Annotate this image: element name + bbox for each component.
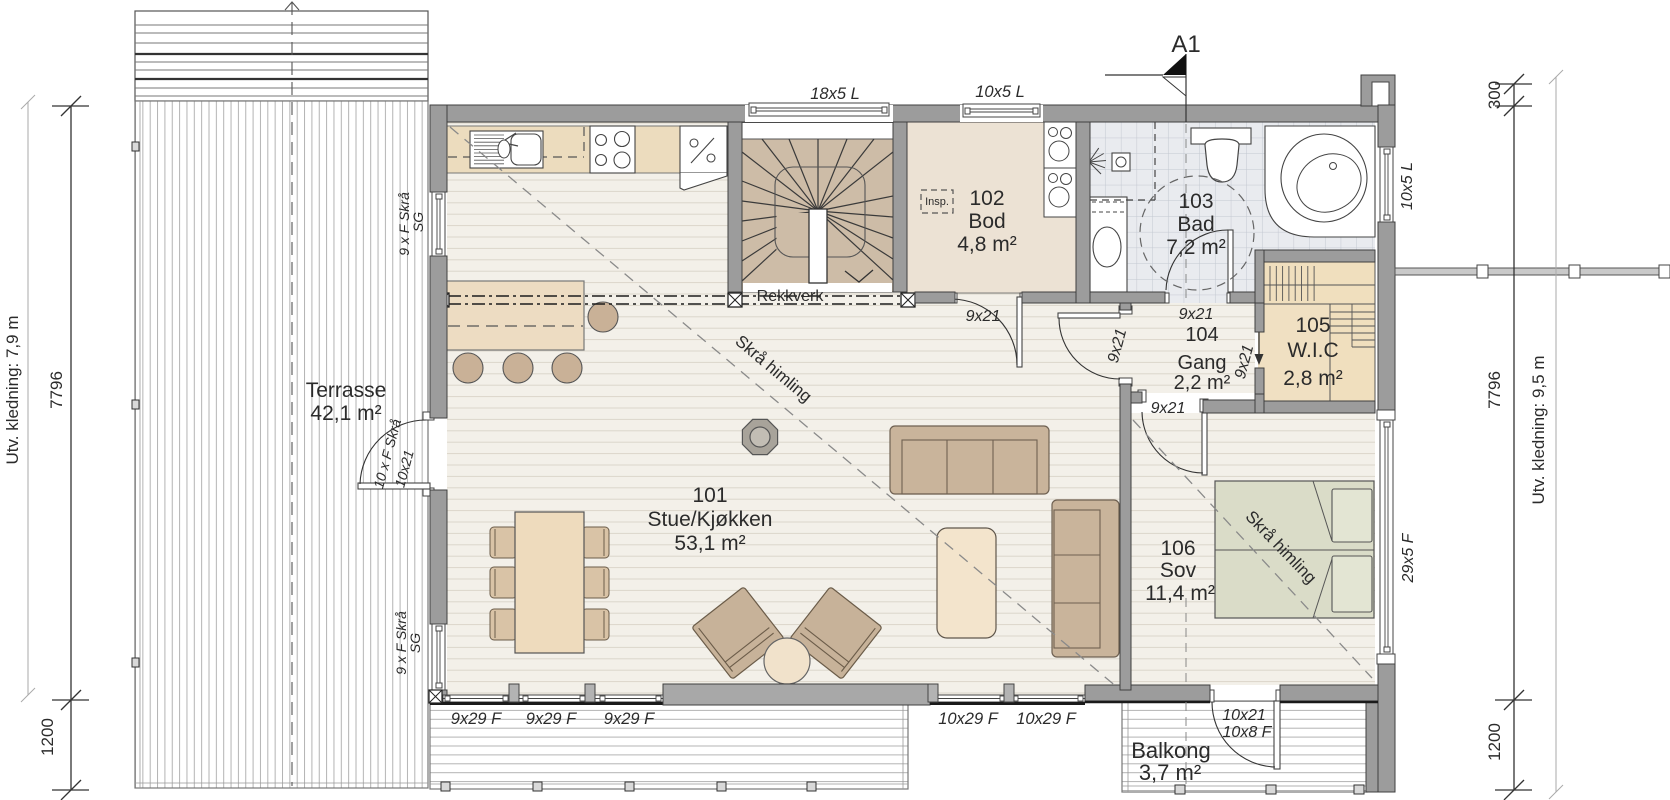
svg-text:Bad: Bad (1177, 213, 1214, 236)
svg-text:29x5 F: 29x5 F (1400, 532, 1417, 583)
svg-text:7796: 7796 (47, 371, 66, 409)
svg-text:Utv. kledning: 7,9 m: Utv. kledning: 7,9 m (3, 316, 22, 465)
svg-text:9x21: 9x21 (1179, 306, 1214, 323)
svg-text:Sov: Sov (1160, 559, 1197, 582)
svg-text:9x29 F: 9x29 F (451, 710, 502, 728)
svg-text:104: 104 (1185, 324, 1218, 346)
svg-text:9x29 F: 9x29 F (526, 710, 577, 728)
svg-text:53,1 m²: 53,1 m² (674, 532, 745, 555)
svg-text:4,8 m²: 4,8 m² (957, 233, 1017, 256)
svg-text:1200: 1200 (1485, 723, 1504, 761)
svg-text:Rekkverk: Rekkverk (757, 288, 825, 305)
svg-text:10x21: 10x21 (1222, 707, 1266, 724)
svg-text:105: 105 (1295, 314, 1330, 337)
svg-text:7796: 7796 (1485, 371, 1504, 409)
svg-text:10x8 F: 10x8 F (1223, 724, 1273, 741)
svg-text:103: 103 (1178, 190, 1213, 213)
svg-text:300: 300 (1485, 81, 1504, 109)
svg-text:Gang: Gang (1178, 352, 1227, 374)
svg-text:Bod: Bod (968, 210, 1005, 233)
svg-text:SG: SG (407, 633, 423, 653)
svg-text:2,2 m²: 2,2 m² (1174, 372, 1231, 394)
svg-text:9x29 F: 9x29 F (604, 710, 655, 728)
svg-text:7,2 m²: 7,2 m² (1166, 236, 1226, 259)
svg-text:10x5 L: 10x5 L (975, 83, 1025, 101)
svg-text:1200: 1200 (38, 718, 57, 756)
svg-text:Insp.: Insp. (925, 196, 949, 208)
svg-text:10x5 L: 10x5 L (1399, 162, 1416, 210)
svg-text:106: 106 (1160, 537, 1195, 560)
svg-text:2,8 m²: 2,8 m² (1283, 367, 1343, 390)
svg-text:SG: SG (410, 212, 426, 232)
svg-text:42,1 m²: 42,1 m² (310, 402, 381, 425)
svg-text:11,4 m²: 11,4 m² (1145, 582, 1215, 605)
svg-text:9x21: 9x21 (966, 308, 1001, 325)
svg-text:Utv. kledning: 9,5 m: Utv. kledning: 9,5 m (1529, 356, 1548, 505)
svg-text:A1: A1 (1171, 31, 1200, 58)
svg-text:Stue/Kjøkken: Stue/Kjøkken (648, 508, 773, 531)
svg-text:10x29 F: 10x29 F (1016, 710, 1077, 728)
svg-text:18x5 L: 18x5 L (810, 85, 860, 103)
svg-text:102: 102 (969, 187, 1004, 210)
svg-text:9x21: 9x21 (1151, 400, 1186, 417)
svg-text:W.I.C: W.I.C (1287, 339, 1338, 362)
svg-text:101: 101 (692, 484, 727, 507)
svg-text:Terrasse: Terrasse (306, 379, 387, 402)
svg-text:10x29 F: 10x29 F (938, 710, 999, 728)
svg-text:3,7 m²: 3,7 m² (1139, 760, 1201, 785)
